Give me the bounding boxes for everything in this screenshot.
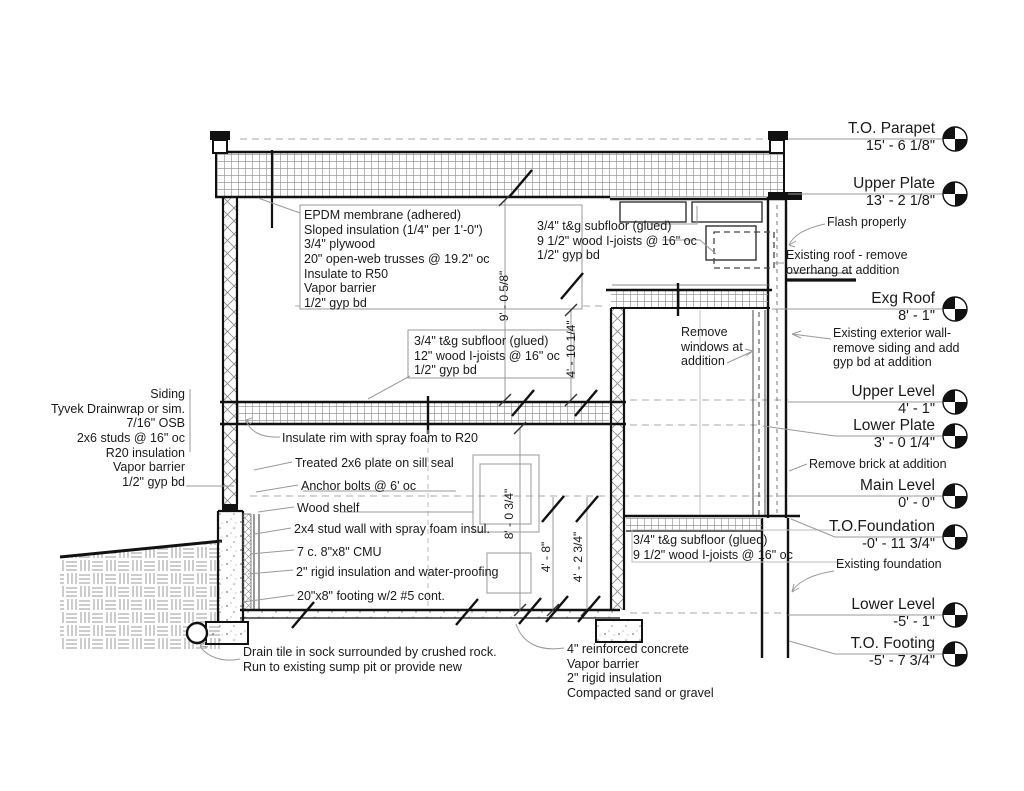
- dim-4-8: 4' - 8": [539, 507, 553, 607]
- existing-roof-band: [606, 283, 772, 316]
- level-name: T.O. Footing: [765, 635, 935, 653]
- level-elevation: 15' - 6 1/8": [765, 138, 935, 155]
- note-cmu: 7 c. 8"x8" CMU: [297, 545, 382, 560]
- level-name: Lower Level: [765, 596, 935, 614]
- level-upper-plate: Upper Plate 13' - 2 1/8": [765, 175, 935, 210]
- level-elevation: -5' - 7 3/4": [765, 653, 935, 670]
- note-sill-plate: Treated 2x6 plate on sill seal: [295, 456, 454, 471]
- dim-4-2-3-4: 4' - 2 3/4": [571, 507, 585, 607]
- note-rigid-insulation: 2" rigid insulation and water-proofing: [296, 565, 498, 580]
- center-wall: [611, 308, 624, 610]
- level-to-footing: T.O. Footing -5' - 7 3/4": [765, 635, 935, 670]
- level-upper-level: Upper Level 4' - 1": [765, 383, 935, 418]
- section-drawing-page: T.O. Parapet 15' - 6 1/8" Upper Plate 13…: [0, 0, 1024, 791]
- level-elevation: -5' - 1": [765, 614, 935, 631]
- level-name: Upper Level: [765, 383, 935, 401]
- level-elevation: 8' - 1": [765, 308, 935, 325]
- level-lower-level: Lower Level -5' - 1": [765, 596, 935, 631]
- note-wood-shelf: Wood shelf: [297, 501, 359, 516]
- note-mid-floor: 3/4" t&g subfloor (glued) 12" wood I-joi…: [414, 334, 560, 378]
- addition-left-wall: [223, 197, 237, 505]
- level-name: Lower Plate: [765, 417, 935, 435]
- left-footing: [206, 622, 248, 644]
- existing-exterior-wall: [753, 197, 786, 518]
- level-elevation: 0' - 0": [765, 495, 935, 512]
- level-lower-plate: Lower Plate 3' - 0 1/4": [765, 417, 935, 452]
- level-name: Exg Roof: [765, 290, 935, 308]
- note-drain-tile: Drain tile in sock surrounded by crushed…: [243, 645, 497, 674]
- drain-tile: [187, 623, 207, 643]
- level-elevation: 3' - 0 1/4": [765, 435, 935, 452]
- note-upper-floor-right: 3/4" t&g subfloor (glued) 9 1/2" wood I-…: [537, 219, 697, 263]
- level-to-parapet: T.O. Parapet 15' - 6 1/8": [765, 120, 935, 155]
- level-exg-roof: Exg Roof 8' - 1": [765, 290, 935, 325]
- level-main-level: Main Level 0' - 0": [765, 477, 935, 512]
- note-anchor-bolts: Anchor bolts @ 6' oc: [301, 479, 416, 494]
- dim-9-0-5-8: 9' - 0 5/8": [497, 246, 511, 346]
- note-existing-roof: Existing roof - remove overhang at addit…: [786, 248, 908, 277]
- upper-floor-band: [220, 396, 626, 434]
- note-roof-assembly: EPDM membrane (adhered) Sloped insulatio…: [304, 208, 490, 310]
- note-slab: 4" reinforced concrete Vapor barrier 2" …: [567, 642, 714, 701]
- note-lower-floor-right: 3/4" t&g subfloor (glued) 9 1/2" wood I-…: [633, 533, 793, 562]
- level-name: Upper Plate: [765, 175, 935, 193]
- foundation-wall: [218, 504, 259, 622]
- note-stud-wall: 2x4 stud wall with spray foam insul.: [294, 522, 490, 537]
- note-left-wall-assembly: Siding Tyvek Drainwrap or sim. 7/16" OSB…: [51, 387, 185, 489]
- center-footing: [596, 620, 642, 642]
- note-existing-wall: Existing exterior wall- remove siding an…: [833, 326, 959, 370]
- dim-4-10-1-4: 4' - 10 1/4": [564, 299, 578, 399]
- note-remove-windows: Remove windows at addition: [681, 325, 743, 369]
- basement-slab: [240, 610, 620, 618]
- level-elevation: 4' - 1": [765, 401, 935, 418]
- level-name: Main Level: [765, 477, 935, 495]
- dim-8-0-3-4: 8' - 0 3/4": [502, 464, 516, 564]
- level-elevation: 13' - 2 1/8": [765, 193, 935, 210]
- level-name: T.O. Parapet: [765, 120, 935, 138]
- note-remove-brick: Remove brick at addition: [809, 457, 947, 472]
- note-flash-properly: Flash properly: [827, 215, 906, 230]
- level-target-symbols: [943, 127, 967, 666]
- note-insulate-rim: Insulate rim with spray foam to R20: [282, 431, 478, 446]
- note-existing-foundation: Existing foundation: [836, 557, 942, 572]
- note-footing: 20"x8" footing w/2 #5 cont.: [297, 589, 445, 604]
